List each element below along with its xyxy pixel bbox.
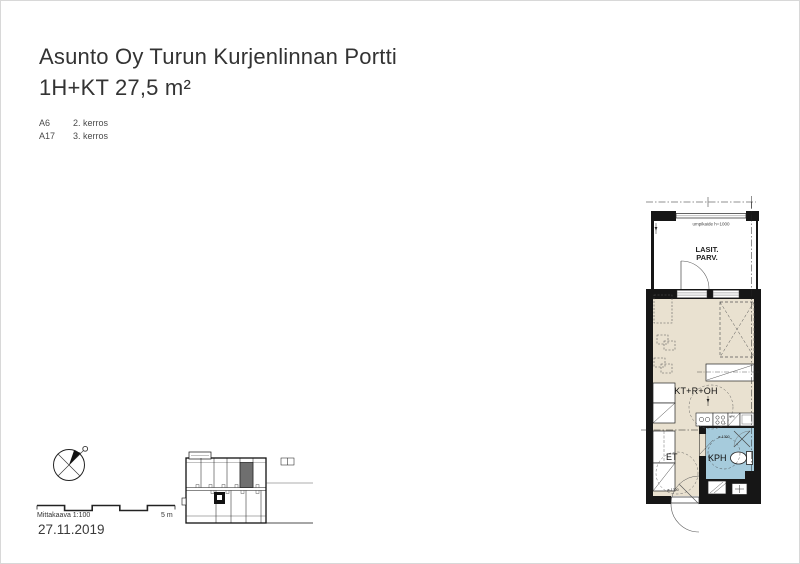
scale-max-label: 5 m	[161, 512, 173, 519]
apartment-id: A17	[39, 130, 73, 143]
balcony: umpikaide h=1000 LASIT. PARV.	[651, 211, 759, 289]
highlighted-unit	[240, 463, 253, 488]
room-label: KT+R+OH	[674, 386, 717, 396]
apartment-floor: 2. kerros	[73, 118, 108, 128]
apartment-list: A62. kerros A173. kerros	[39, 117, 108, 143]
floor-drain-icon	[732, 484, 747, 495]
washing-machine-icon	[708, 481, 726, 494]
apartment-row: A62. kerros	[39, 117, 108, 130]
floorplan-svg: umpikaide h=1000 LASIT. PARV.	[633, 194, 768, 539]
turning-circle-label: ø-1300	[667, 488, 678, 492]
apartment-floor: 3. kerros	[73, 131, 108, 141]
window-wall	[646, 289, 761, 299]
sliding-door-glazing	[677, 290, 707, 297]
apartment: ø-1300 APK	[646, 295, 761, 532]
railing-note: umpikaide h=1000	[693, 222, 730, 227]
apartment-row: A173. kerros	[39, 130, 108, 143]
page-title: Asunto Oy Turun Kurjenlinnan Portti	[39, 41, 397, 72]
compass-icon	[47, 434, 97, 484]
drawing-sheet: Asunto Oy Turun Kurjenlinnan Portti 1H+K…	[0, 0, 800, 564]
bathroom-label: KPH	[708, 453, 727, 463]
kitchen-counter	[697, 364, 759, 381]
site-plan	[181, 449, 316, 529]
window-glazing	[713, 290, 739, 297]
hall-label: ET	[666, 452, 678, 462]
balcony-label: PARV.	[696, 253, 718, 262]
toilet-icon	[731, 452, 753, 465]
page-subtitle: 1H+KT 27,5 m²	[39, 72, 397, 103]
title-block: Asunto Oy Turun Kurjenlinnan Portti 1H+K…	[39, 41, 397, 103]
balcony-door	[681, 261, 709, 289]
north-ring-icon	[83, 446, 88, 451]
date-label: 27.11.2019	[38, 522, 105, 537]
scale-label: Mittakaava 1:100	[37, 512, 90, 519]
north-arrow-icon	[69, 451, 81, 466]
apartment-id: A6	[39, 117, 73, 130]
turning-circle-label: ø-1300	[718, 435, 729, 439]
